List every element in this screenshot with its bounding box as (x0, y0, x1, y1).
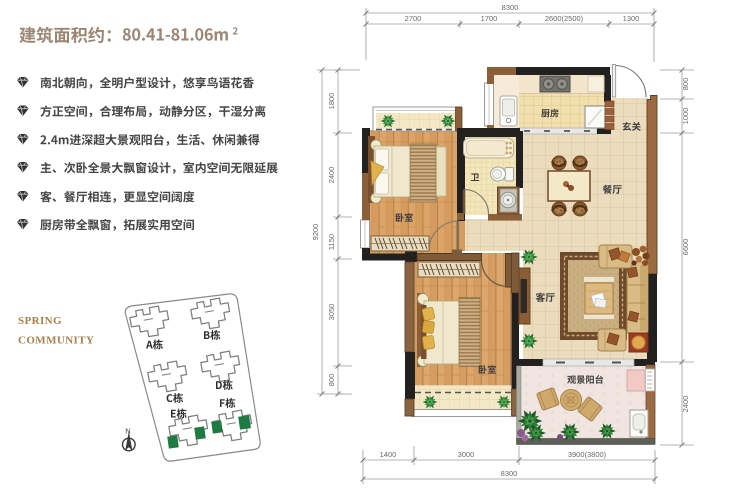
svg-text:8300: 8300 (502, 3, 519, 12)
svg-text:3050: 3050 (327, 304, 336, 321)
svg-text:800: 800 (681, 78, 690, 91)
svg-text:1000: 1000 (681, 108, 690, 125)
svg-text:2400: 2400 (681, 396, 690, 413)
svg-text:9200: 9200 (311, 224, 320, 241)
svg-text:8300: 8300 (501, 469, 518, 478)
svg-text:N: N (125, 427, 130, 436)
svg-text:2400: 2400 (327, 167, 336, 184)
svg-text:1150: 1150 (327, 234, 336, 250)
svg-text:2700: 2700 (405, 14, 422, 23)
svg-text:6600: 6600 (681, 239, 690, 256)
svg-text:COMMUNITY: COMMUNITY (18, 335, 94, 347)
svg-text:3900(3800): 3900(3800) (568, 450, 607, 459)
svg-text:800: 800 (327, 374, 336, 387)
svg-text:1700: 1700 (481, 14, 498, 23)
svg-text:2600(2500): 2600(2500) (545, 14, 584, 23)
svg-text:1300: 1300 (623, 14, 640, 23)
svg-text:1400: 1400 (380, 450, 397, 459)
svg-text:3000: 3000 (458, 450, 475, 459)
svg-text:SPRING: SPRING (18, 315, 62, 327)
svg-text:1800: 1800 (327, 93, 336, 110)
